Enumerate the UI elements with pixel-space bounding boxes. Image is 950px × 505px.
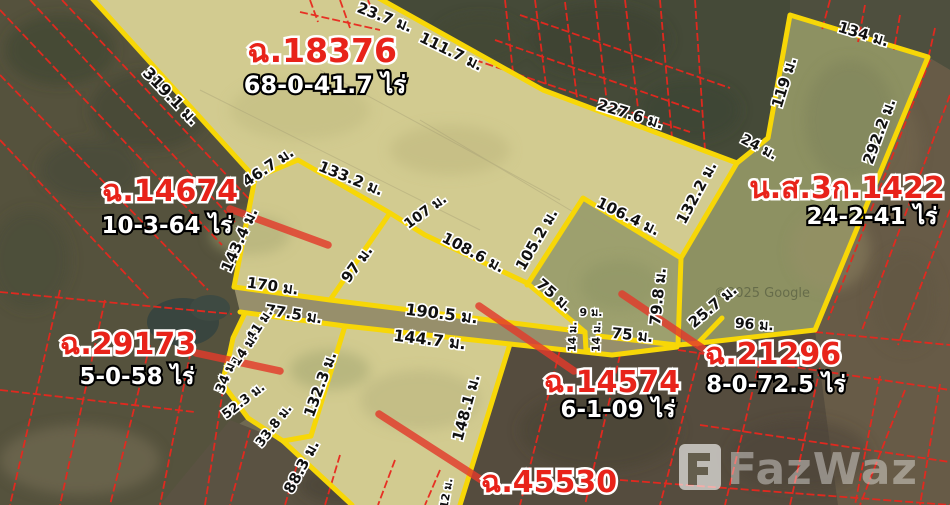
- parcel-id-ns3k1422: น.ส.3ก.1422: [749, 171, 945, 206]
- parcel-area-14574: 6-1-09 ไร่: [560, 395, 676, 423]
- parcel-area-29173: 5-0-58 ไร่: [79, 362, 195, 390]
- fazwaz-watermark: FazWaz: [679, 444, 918, 495]
- parcel-id-18376: ฉ.18376: [247, 31, 397, 70]
- satellite-map-canvas: ©2025 Google 319.1 ม. 23.7 ม. 111.7 ม. 2…: [0, 0, 950, 505]
- parcel-id-14574: ฉ.14574: [544, 365, 680, 400]
- parcel-id-14674: ฉ.14674: [102, 174, 238, 209]
- fazwaz-watermark-text: FazWaz: [727, 444, 918, 495]
- parcel-area-14674: 10-3-64 ไร่: [101, 211, 233, 239]
- edge-label: 14 ม.: [565, 321, 579, 352]
- edge-label: 96 ม.: [734, 316, 774, 335]
- parcel-id-45530: ฉ.45530: [481, 465, 617, 500]
- edge-label: 9 ม.: [580, 306, 603, 319]
- parcel-area-ns3k1422: 24-2-41 ไร่: [806, 202, 938, 230]
- parcel-area-18376: 68-0-41.7 ไร่: [244, 70, 407, 99]
- edge-label: 14 ม.: [589, 321, 603, 352]
- land-plot-map[interactable]: ©2025 Google 319.1 ม. 23.7 ม. 111.7 ม. 2…: [0, 0, 950, 505]
- parcel-area-21296: 8-0-72.5 ไร่: [706, 370, 846, 398]
- parcel-id-29173: ฉ.29173: [60, 327, 196, 362]
- parcel-id-21296: ฉ.21296: [705, 337, 841, 372]
